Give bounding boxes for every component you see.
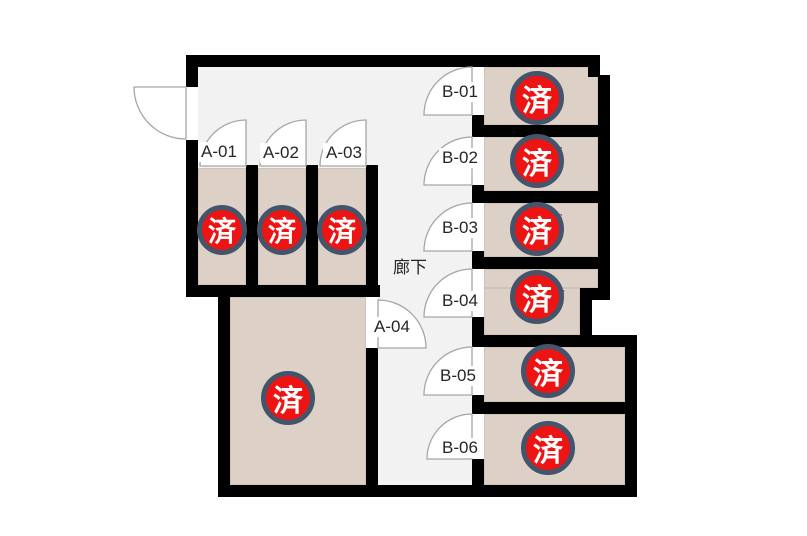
stamp-b03: 済: [510, 202, 564, 256]
wall-b04-step-vertical: [580, 300, 592, 335]
room-label-b05: B-05: [437, 366, 479, 386]
wall-b04-step-horizontal: [580, 288, 610, 300]
wall-b05-b06-divider: [472, 402, 637, 414]
entrance-door-icon: [134, 87, 186, 139]
stamp-a02: 済: [257, 205, 307, 255]
stamp-b04: 済: [510, 270, 564, 324]
wall-bottom: [218, 485, 637, 497]
room-label-a03: A-03: [323, 143, 365, 163]
wall-b05-door-stub: [472, 395, 484, 414]
wall-a-block-right: [366, 165, 378, 297]
wall-b04-door-stub: [472, 317, 484, 347]
stamp-b06: 済: [521, 421, 575, 475]
wall-left-above-entrance: [186, 67, 198, 87]
wall-left-main: [186, 140, 198, 297]
floor-plan: 2 5 2 ² ² m² m² ²: [0, 0, 807, 536]
wall-a04-right: [366, 348, 378, 497]
stamp-b05: 済: [521, 344, 575, 398]
stamp-a01: 済: [197, 205, 247, 255]
wall-right-b05-b06: [625, 335, 637, 497]
wall-b03-door-stub: [472, 251, 484, 269]
room-label-b06: B-06: [439, 438, 481, 458]
wall-b02-b03-divider: [472, 191, 610, 203]
corridor-label: 廊下: [393, 259, 427, 277]
stamp-b02: 済: [510, 134, 564, 188]
stamp-b01: 済: [510, 71, 564, 125]
wall-a04-left: [218, 297, 230, 497]
room-label-a02: A-02: [260, 143, 302, 163]
room-label-b01: B-01: [439, 82, 481, 102]
wall-b01-door-stub: [472, 115, 484, 137]
stamp-a03: 済: [317, 205, 367, 255]
room-label-a04: A-04: [371, 317, 413, 337]
room-label-b03: B-03: [439, 218, 481, 238]
stamp-a04: 済: [261, 371, 315, 425]
room-label-b02: B-02: [439, 148, 481, 168]
wall-b03-b04-divider: [472, 257, 610, 269]
wall-b06-door-stub: [472, 459, 484, 497]
wall-top: [186, 55, 600, 67]
wall-a-block-bottom: [186, 285, 380, 297]
wall-b02-door-stub: [472, 185, 484, 203]
room-label-b04: B-04: [439, 291, 481, 311]
room-label-a01: A-01: [198, 142, 240, 162]
